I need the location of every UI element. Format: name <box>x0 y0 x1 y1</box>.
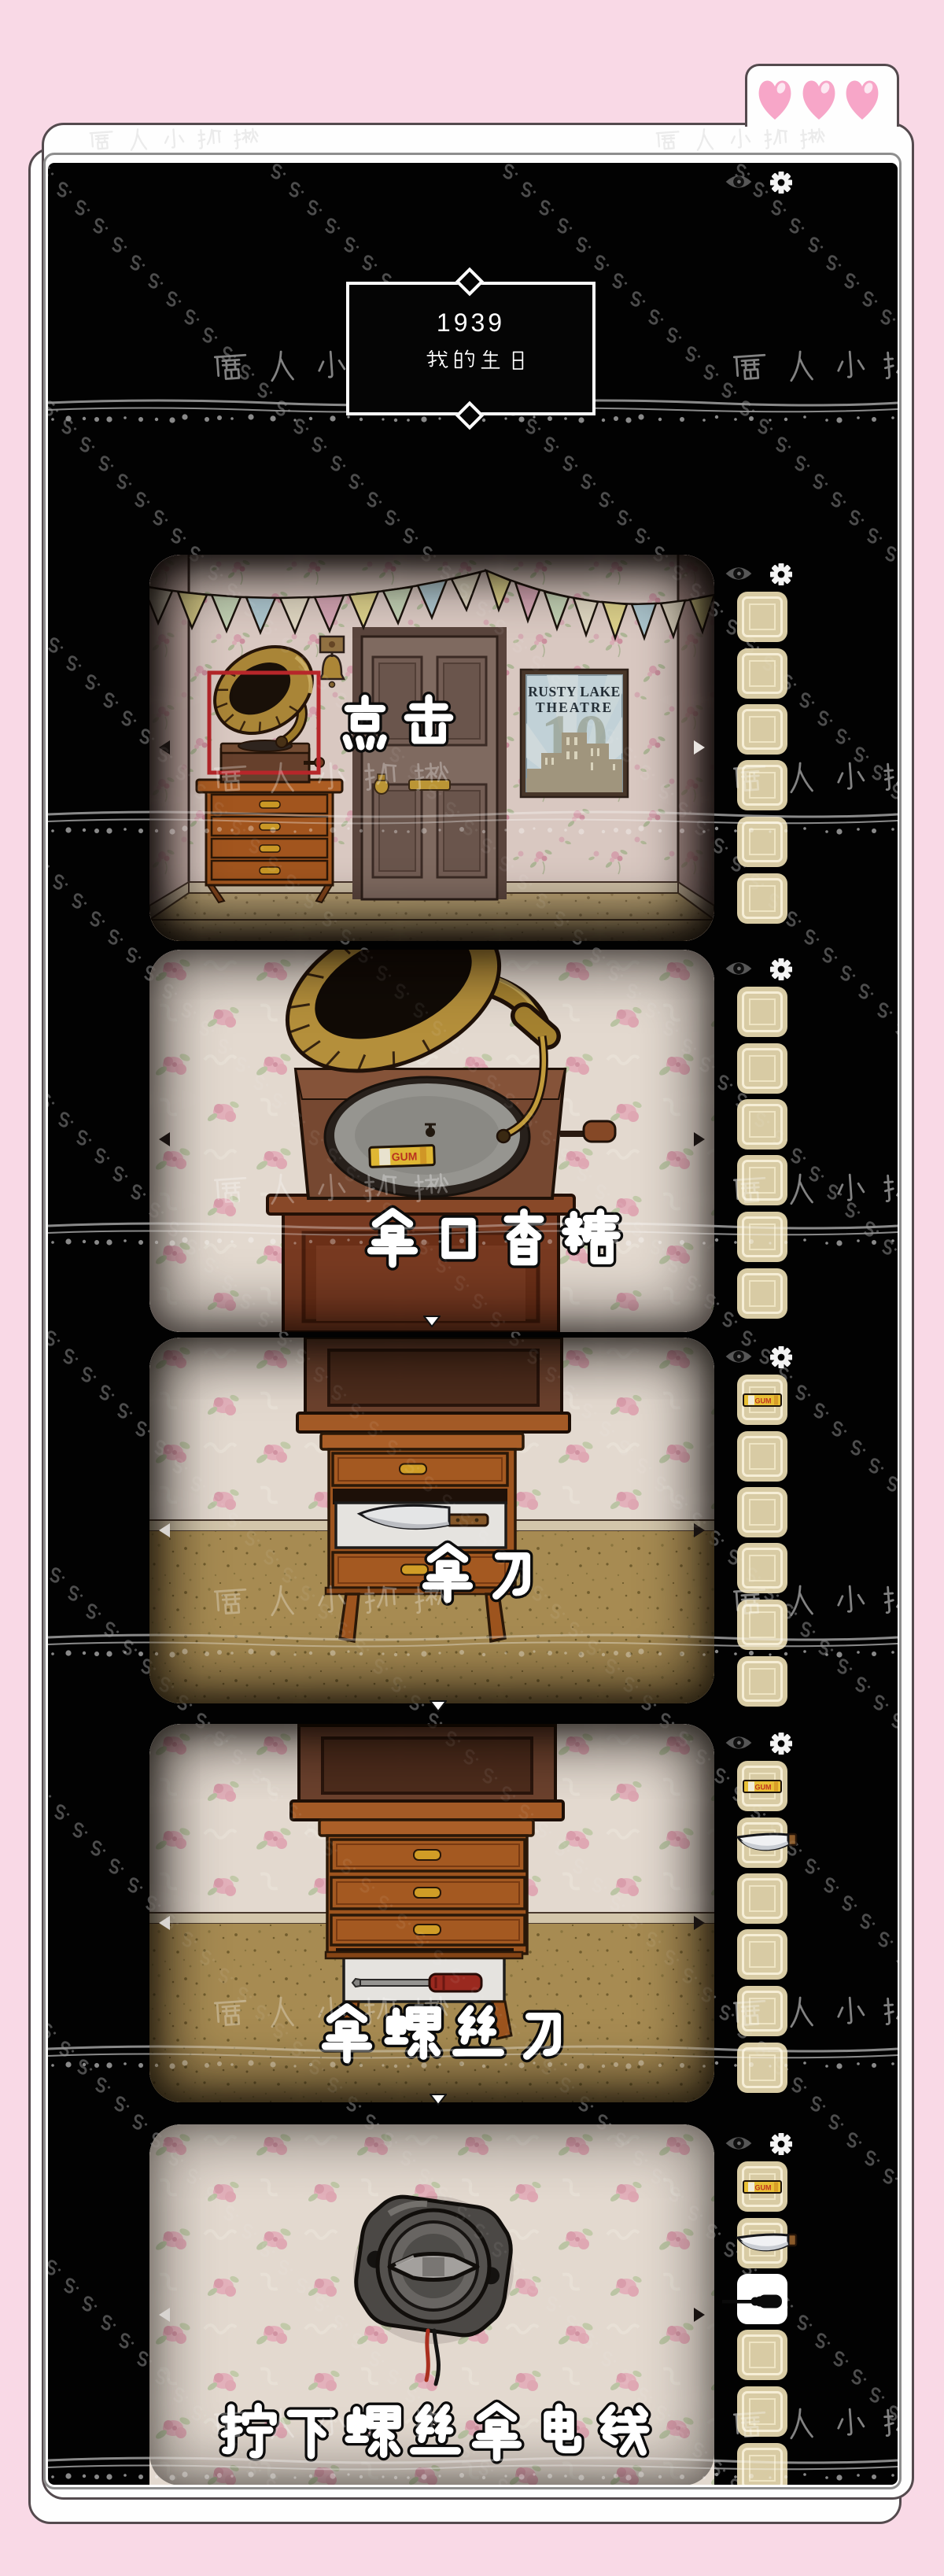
svg-text:GUM: GUM <box>755 2184 772 2192</box>
svg-text:GUM: GUM <box>755 1784 772 1792</box>
svg-text:GUM: GUM <box>755 1397 772 1405</box>
